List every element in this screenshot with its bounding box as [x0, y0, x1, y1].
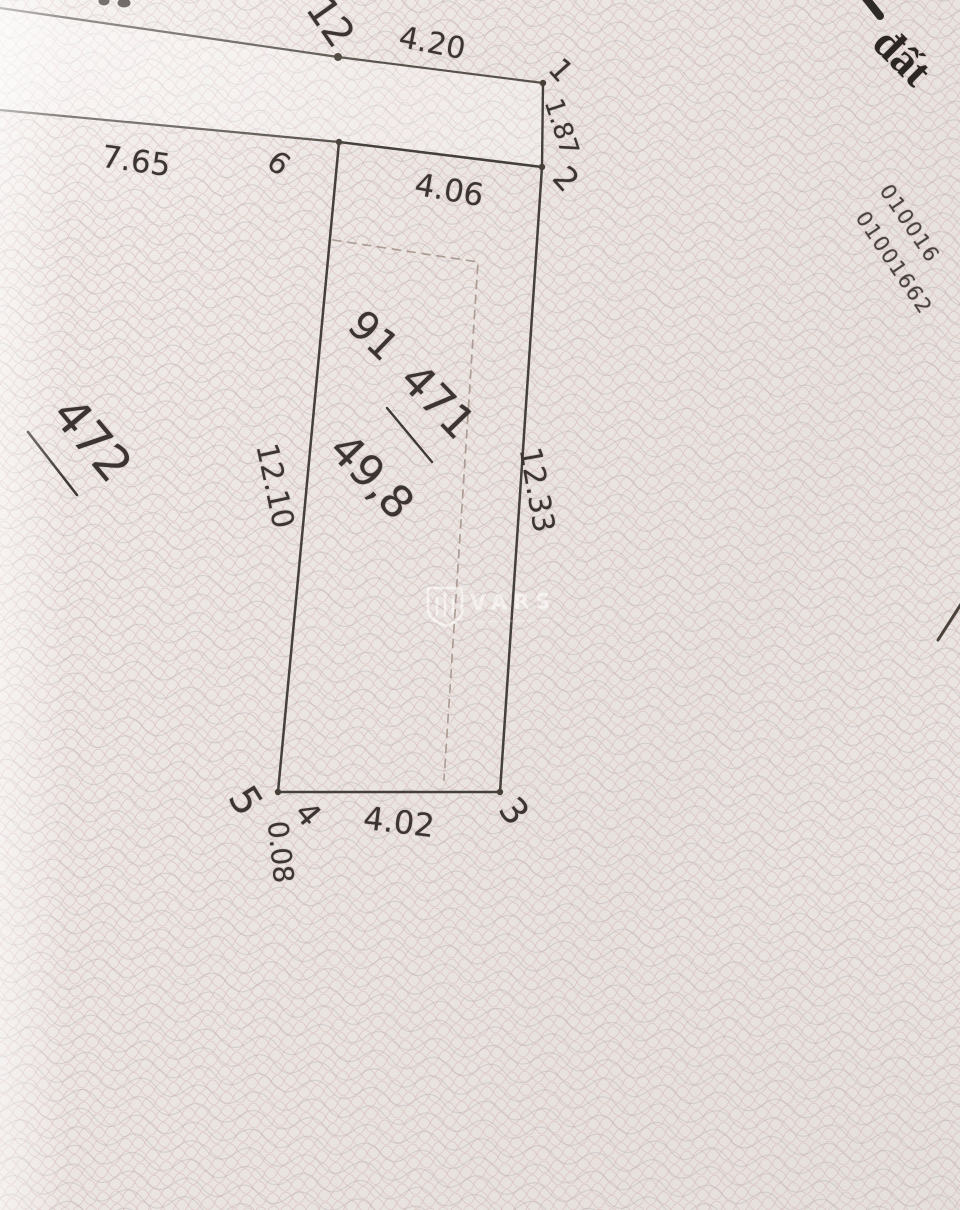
dim-south-label: 4.02 [362, 802, 437, 842]
dim-southwest-step-label: 0.08 [263, 820, 297, 885]
watermark-text: VARS [470, 591, 557, 614]
cadastral-extract-photo: 12 4.20 1 1.87 2 7.65 6 4.06 12.33 12.10… [0, 0, 960, 1210]
dim-road-left-label: 7.65 [100, 142, 173, 182]
